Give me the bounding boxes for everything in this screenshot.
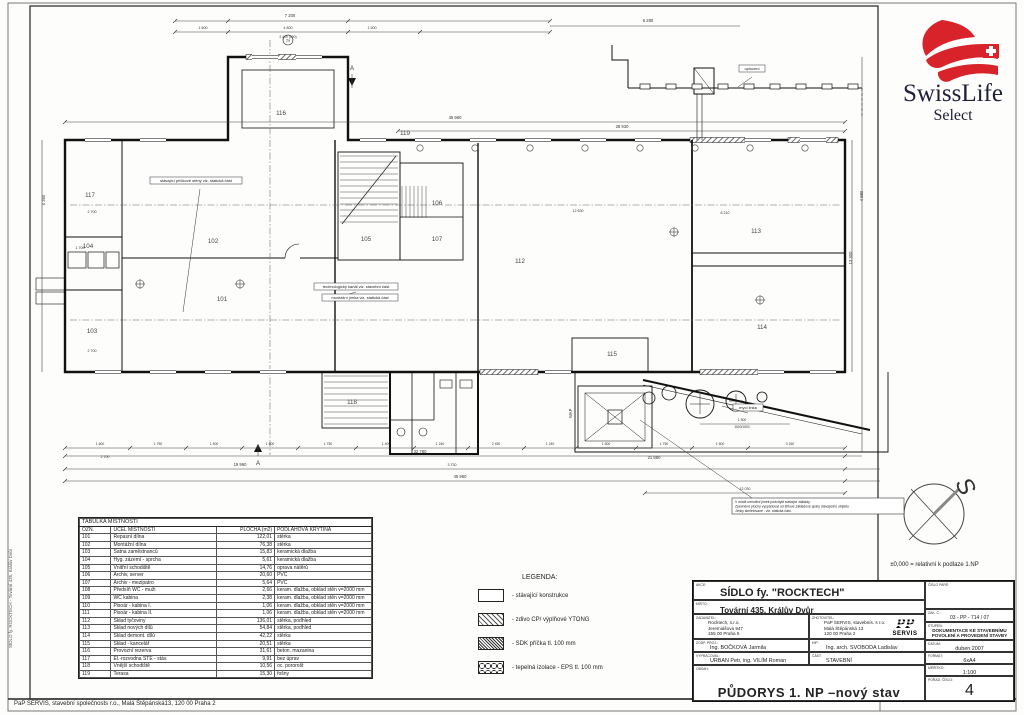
room-table-header: PODLAHOVÁ KRYTINA [275,526,372,534]
svg-text:2a: 2a [286,39,290,43]
svg-text:mycí linka: mycí linka [739,405,758,410]
room-table-header: OZN. [80,526,111,534]
author-name: URBAN Petr, ing. VILÍM Roman [694,658,808,664]
svg-text:118: 118 [347,399,357,406]
sheet-number-cell: POŘAD. ČÍSLO: 4 [925,676,1014,701]
svg-text:101: 101 [217,296,228,303]
format-cell: FORMÁT: 6xA4 [925,652,1014,664]
cislo-pare-label: ČÍSLO PARÉ: [926,582,1013,587]
job-number-cell: ZAK. Č.: 03 - PP - 714 / 07 [925,609,1014,622]
svg-text:1 240: 1 240 [546,442,555,446]
sheet-number: 4 [926,682,1013,700]
legend-swatch-diag-icon [478,613,504,626]
designer-cell: ZODP. PROJ.: Ing. BOČKOVÁ Jarmila [693,639,809,652]
titleblock-misto-cell: MÍSTO: Tovární 435, Králův Dvůr [693,600,925,614]
drawing-title: PŮDORYS 1. NP –nový stav [694,685,924,700]
svg-text:19 960: 19 960 [234,462,247,467]
svg-text:1 750: 1 750 [324,442,333,446]
swisslife-logo: SwissLife Select [880,14,1020,124]
column-symbols [135,145,808,305]
drawing-sheet: S 10110210310410510610711211311411511611… [0,0,1024,715]
hip-cell: HIP: Ing. arch. SVOBODA Ladislav [809,639,925,652]
legend-swatch-dense-icon [478,637,504,650]
table-row: 105Vnitřní schodiště14,76oprava nátěrů [80,564,372,572]
svg-text:V místě umístění jímek podchyt: V místě umístění jímek podchytit stávají… [735,500,811,504]
svg-text:2 450: 2 450 [492,442,501,446]
table-row: 115Sklad - kancelář20,51stěrka [80,640,372,648]
room-table-header: PLOCHA (m2) [217,526,275,534]
datum-note: ±0,000 = relativní k podlaze 1.NP [852,562,1017,568]
client-address: Rocktech, s.r.o.Jeremiášova 947155 00 Pr… [694,620,808,637]
svg-text:oplocení: oplocení [744,66,760,71]
pap-logo-servis: SERVIS [888,631,922,637]
pap-servis-logo: PP SERVIS [888,618,922,637]
svg-text:4 360: 4 360 [41,194,46,205]
project-name: SÍDLO fy. "ROCKTECH" [694,587,924,599]
svg-text:12 630: 12 630 [573,209,584,213]
dimension-lines [42,21,880,493]
svg-text:1 750: 1 750 [660,442,669,446]
wap-label: WAP [568,408,573,418]
svg-text:119: 119 [400,130,410,137]
part-name: STAVEBNÍ [810,658,924,664]
room-table-header: ÚČEL MÍSTNOSTI [111,526,217,534]
table-row: 106Archiv, server20,60PVC [80,572,372,580]
table-row: 103Šatna zaměstnanců15,83keramická dlažb… [80,549,372,557]
room-table-title: TABULKA MÍSTNOSTÍ [80,519,372,527]
stage-text: DOKUMENTACE KE STAVEBNÍMU POVOLENÍ A PRO… [926,628,1013,639]
svg-text:1 600: 1 600 [266,442,275,446]
svg-text:102: 102 [208,238,219,245]
svg-text:117: 117 [85,192,95,199]
table-row: 113Sklad nových dílů54,84stěrka, podhled [80,625,372,633]
table-row: 109WC kabina2,38keram. dlažba, obklad st… [80,594,372,602]
table-row: 119Terasa15,30fošny [80,670,372,678]
legend-item: - SDK příčka tl. 100 mm [478,637,668,650]
svg-text:1 600: 1 600 [602,442,611,446]
svg-text:2 700: 2 700 [88,349,97,353]
svg-text:1 400: 1 400 [210,442,219,446]
job-number: 03 - PP - 714 / 07 [926,615,1013,621]
svg-text:32 780: 32 780 [414,449,427,454]
legend-item-label: - zdivo CP/ výplňové YTONG [512,617,589,623]
svg-text:103: 103 [87,328,98,335]
svg-text:3 730: 3 730 [448,463,457,467]
svg-text:6 280: 6 280 [643,18,654,23]
legend-item-label: - stávající konstrukce [512,593,568,599]
copy-number-cell: ČÍSLO PARÉ: [925,581,1014,609]
table-row: 107Archiv - mezipatro5,64PVC [80,579,372,587]
table-row: 102Montážní dílna76,38stěrka [80,541,372,549]
legend-item: - stávající konstrukce [478,589,668,602]
svg-text:1600/1600: 1600/1600 [734,425,749,429]
designer-name: Ing. BOČKOVÁ Jarmila [694,645,808,651]
dimension-labels: 7 2001 6004 8001 5002 400 (500)6 28045 9… [41,13,864,491]
svg-text:1 500: 1 500 [368,26,377,30]
table-row: 101Repasní dílna122,01stěrka [80,534,372,542]
legend-item: - zdivo CP/ výplňové YTONG [478,613,668,626]
legend-item-label: - tepelná izolace - EPS tl. 100 mm [512,665,603,671]
table-row: 108Předsíň WC - muži2,66keram. dlažba, o… [80,587,372,595]
table-row: 104Hyg. zázemí - sprcha5,61keramická dla… [80,556,372,564]
sheet-side-label: SÍDLO fy. ROCKTECH - Tovární 435, Králův… [8,549,13,648]
table-row: 116Provozní rezerva31,61beton. mazanina [80,648,372,656]
legend-swatch-empty-icon [478,589,504,602]
svg-text:1 600: 1 600 [96,442,105,446]
svg-text:4 800: 4 800 [284,26,293,30]
svg-text:28 930: 28 930 [616,124,629,129]
drawing-title-cell: OBSAH: PŮDORYS 1. NP –nový stav [693,665,925,701]
hip-name: Ing. arch. SVOBODA Ladislav [810,645,924,651]
table-row: 118Vnější schodiště10,56oc. pororošt [80,663,372,671]
svg-text:1 500: 1 500 [738,418,747,422]
legend: LEGENDA: - stávající konstrukce- zdivo C… [478,574,668,685]
date-cell: DATUM: duben 2007 [925,640,1014,652]
svg-text:1 600: 1 600 [716,442,725,446]
svg-text:106: 106 [432,200,443,207]
centerlines [70,40,840,455]
svg-text:montážní jímka viz. statická č: montážní jímka viz. statická část [331,295,389,300]
svg-text:3 260: 3 260 [786,442,795,446]
dimension-ticks [63,19,847,495]
svg-text:114: 114 [757,324,767,331]
contractor-cell: ZHOTOVITEL: PaP SERVIS, stavebnís. s r.o… [809,614,925,639]
legend-item: - tepelná izolace - EPS tl. 100 mm [478,661,668,674]
legend-item-label: - SDK příčka tl. 100 mm [512,641,576,647]
building-walls [36,35,888,454]
pap-logo-pp: PP [888,618,922,631]
svg-text:technologický kanál viz. stave: technologický kanál viz. stavební část [323,284,391,289]
table-row: 111Pisoár - kabina II.1,06keram. dlažba,… [80,610,372,618]
swisslife-sub-text: Select [886,107,1020,125]
table-row: 114Sklad demont. dílů42,22stěrka [80,632,372,640]
svg-text:13 300: 13 300 [848,251,853,264]
room-schedule-table: TABULKA MÍSTNOSTÍ OZN.ÚČEL MÍSTNOSTIPLOC… [78,517,373,679]
titleblock-akce-cell: AKCE: SÍDLO fy. "ROCKTECH" [693,581,925,600]
part-cell: ČÁST: STAVEBNÍ [809,652,925,665]
svg-text:2 700: 2 700 [101,455,110,459]
client-cell: ZADAVATEL: Rocktech, s.r.o.Jeremiášova 9… [693,614,809,639]
svg-text:113: 113 [751,228,761,235]
scale-cell: MĚŘÍTKO: 1:100 [925,664,1014,676]
svg-text:8 210: 8 210 [721,211,730,215]
stage-cell: STUPEŇ: DOKUMENTACE KE STAVEBNÍMU POVOLE… [925,622,1014,641]
obsah-label: OBSAH: [694,666,924,671]
swisslife-brand-text: SwissLife [886,80,1020,108]
sheet-footer: PaP SERVIS, stavební společnosts r.o., M… [14,701,216,707]
svg-text:105: 105 [361,236,372,243]
svg-text:2 700: 2 700 [88,210,97,214]
table-row: 112Sklad tyčoviny136,01stěrka, podhled [80,617,372,625]
svg-text:Jímky skeletované - viz. stati: Jímky skeletované - viz. statická část. [735,509,792,513]
svg-text:1 700: 1 700 [76,246,85,250]
svg-text:112: 112 [515,258,525,265]
svg-text:1 750: 1 750 [154,442,163,446]
title-block: AKCE: SÍDLO fy. "ROCKTECH" MÍSTO: Továrn… [692,580,1015,702]
svg-text:1 240: 1 240 [436,442,445,446]
fence-posts [640,84,858,89]
svg-text:116: 116 [276,110,286,117]
legend-swatch-wave-icon [478,661,504,674]
svg-text:stávající příčkové stěny viz.: stávající příčkové stěny viz. statická č… [160,178,233,183]
svg-text:A: A [350,66,354,72]
room-table-header-row: OZN.ÚČEL MÍSTNOSTIPLOCHA (m2)PODLAHOVÁ K… [80,526,372,534]
svg-text:1 400: 1 400 [382,442,391,446]
svg-text:Zpevněné plochy vyspádovat od: Zpevněné plochy vyspádovat od štítové zá… [735,505,849,509]
svg-text:45 960: 45 960 [454,474,467,479]
table-row: 110Pisoár - kabina I.1,06keram. dlažba, … [80,602,372,610]
author-cell: VYPRACOVAL: URBAN Petr, ing. VILÍM Roman [693,652,809,665]
svg-text:45 960: 45 960 [449,115,462,120]
table-row: 117El.-rozvodna STE - stáv.9,91bez úprav [80,655,372,663]
svg-text:A: A [256,461,260,467]
svg-text:1 600: 1 600 [199,26,208,30]
annotation-callouts: oplocenístávající příčkové stěny viz. st… [150,65,904,514]
svg-text:107: 107 [432,236,443,243]
svg-text:115: 115 [607,351,617,358]
legend-title: LEGENDA: [522,574,668,581]
svg-text:21 880: 21 880 [648,455,661,460]
svg-text:7 200: 7 200 [285,13,296,18]
svg-text:4 880: 4 880 [859,190,864,201]
